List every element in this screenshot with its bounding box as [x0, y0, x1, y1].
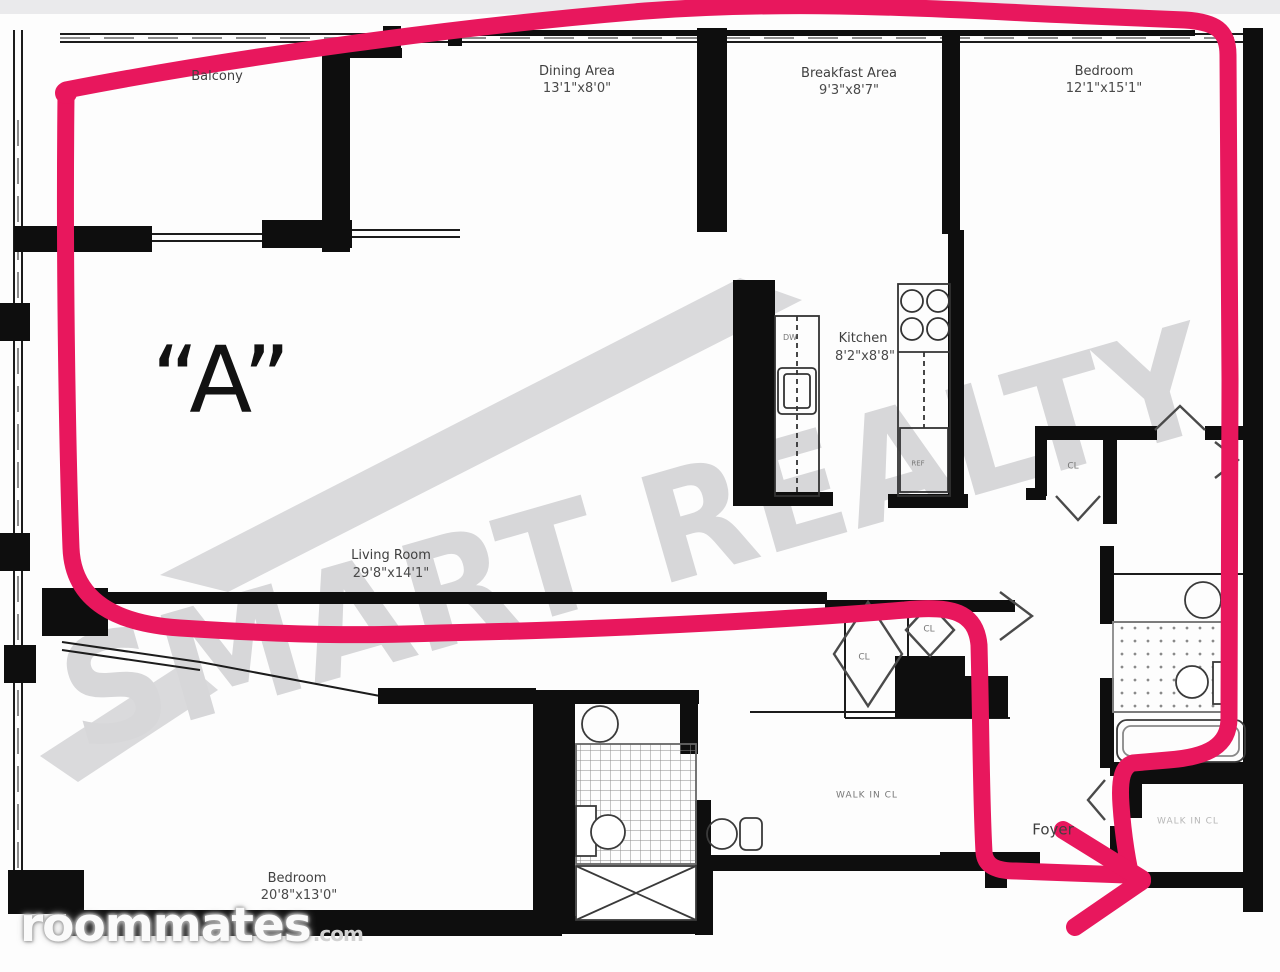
label-living-name: Living Room [351, 548, 431, 564]
unit-letter-label: “A” [151, 323, 292, 438]
label-dining-dims: 13'1"x8'0" [543, 81, 611, 97]
sink-icon [582, 706, 618, 742]
roommates-watermark-tld: .com [313, 922, 363, 946]
label-closet-2: CL [923, 624, 934, 635]
label-balcony: Balcony [191, 69, 243, 85]
label-foyer: Foyer [1032, 821, 1074, 840]
label-closet-3: CL [1067, 461, 1078, 472]
label-dishwasher: DW [783, 333, 797, 343]
roommates-watermark: roommates.com [20, 898, 363, 953]
floor-plan-drawing: SMART REALTY [0, 0, 1280, 972]
roommates-watermark-text: roommates [20, 898, 311, 953]
label-dining-name: Dining Area [539, 64, 615, 80]
powder-toilet-icon [707, 819, 737, 849]
label-bedroom-top-dims: 12'1"x15'1" [1066, 81, 1142, 97]
toilet-icon [1176, 666, 1208, 698]
label-breakfast-name: Breakfast Area [801, 66, 897, 82]
label-walk-in-closet-2: WALK IN CL [1157, 816, 1219, 827]
floor-plan-page: SMART REALTY [0, 0, 1280, 972]
label-kitchen-name: Kitchen [839, 331, 888, 347]
main-bathroom-fixtures [576, 706, 762, 920]
label-refrigerator: REF [911, 460, 924, 469]
route-start-dot [55, 82, 77, 104]
label-walk-in-closet: WALK IN CL [836, 790, 898, 801]
label-living-dims: 29'8"x14'1" [353, 566, 429, 582]
sink-icon [1185, 582, 1221, 618]
label-kitchen-dims: 8'2"x8'8" [835, 349, 895, 365]
stove-burners-icon [901, 290, 949, 340]
label-bedroom-top-name: Bedroom [1075, 64, 1134, 80]
label-bedroom-bottom-name: Bedroom [268, 871, 327, 887]
label-closet-1: CL [858, 652, 869, 663]
label-breakfast-dims: 9'3"x8'7" [819, 83, 879, 99]
toilet-icon [591, 815, 625, 849]
